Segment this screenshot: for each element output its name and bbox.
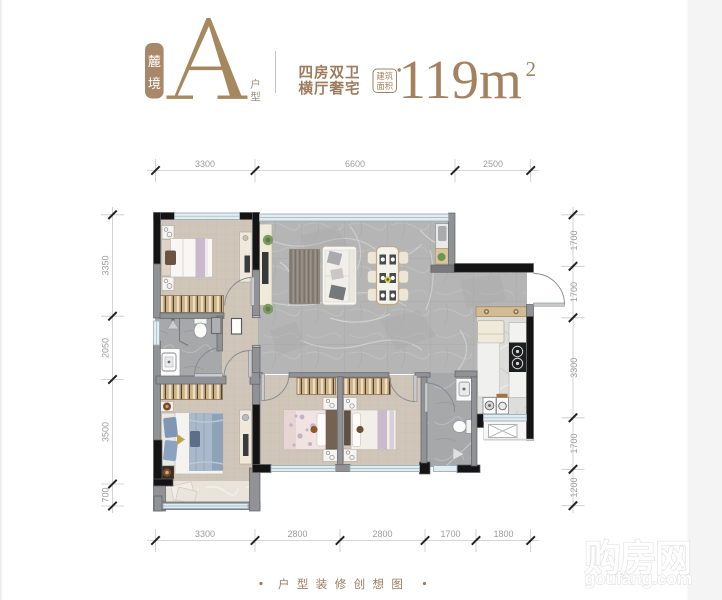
svg-text:3300: 3300 bbox=[569, 358, 579, 378]
svg-text:2500: 2500 bbox=[483, 159, 503, 169]
svg-text:户型装修创想图: 户型装修创想图 bbox=[278, 577, 410, 591]
svg-text:型: 型 bbox=[250, 90, 261, 103]
svg-text:1700: 1700 bbox=[569, 282, 579, 302]
svg-text:6600: 6600 bbox=[345, 159, 365, 169]
svg-text:119m: 119m bbox=[399, 49, 522, 110]
svg-text:面积: 面积 bbox=[376, 81, 393, 91]
svg-text:700: 700 bbox=[101, 487, 111, 502]
svg-text:3300: 3300 bbox=[195, 529, 215, 539]
svg-text:四房双卫: 四房双卫 bbox=[299, 64, 361, 82]
svg-text:横厅奢宅: 横厅奢宅 bbox=[299, 80, 361, 98]
svg-text:2050: 2050 bbox=[101, 338, 111, 358]
svg-text:3500: 3500 bbox=[101, 422, 111, 442]
svg-text:户: 户 bbox=[250, 78, 261, 91]
svg-text:3300: 3300 bbox=[195, 159, 215, 169]
svg-text:建筑: 建筑 bbox=[376, 71, 393, 81]
svg-text:2800: 2800 bbox=[372, 529, 392, 539]
svg-text:2800: 2800 bbox=[287, 529, 307, 539]
svg-text:1700: 1700 bbox=[440, 529, 460, 539]
svg-text:3350: 3350 bbox=[101, 255, 111, 275]
svg-text:麓: 麓 bbox=[148, 54, 161, 69]
svg-text:1800: 1800 bbox=[493, 529, 513, 539]
svg-text:1700: 1700 bbox=[569, 230, 579, 250]
svg-text:1200: 1200 bbox=[569, 477, 579, 497]
svg-text:境: 境 bbox=[148, 76, 161, 91]
svg-text:1700: 1700 bbox=[569, 433, 579, 453]
svg-text:2: 2 bbox=[526, 57, 537, 81]
svg-text:goufang.com: goufang.com bbox=[585, 569, 693, 589]
